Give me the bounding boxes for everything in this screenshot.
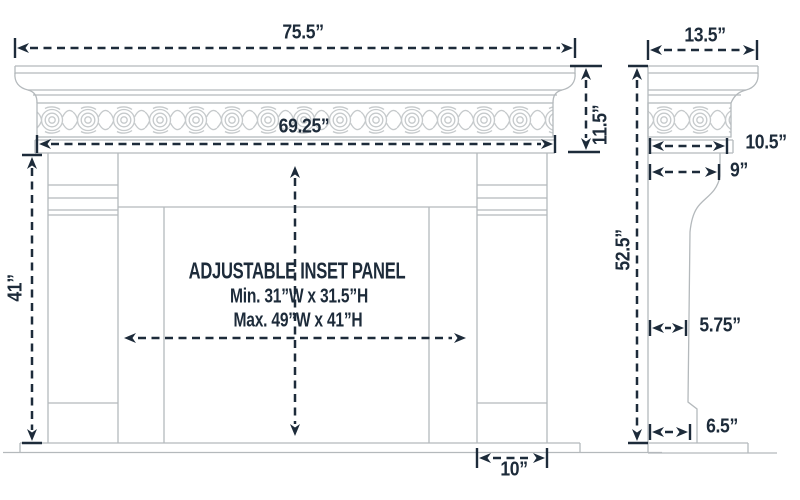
dim-leg-width-label: 10” bbox=[500, 459, 527, 482]
dim-frieze-width-label: 69.25” bbox=[279, 116, 330, 139]
inset-panel-min: Min. 31”W x 31.5”H bbox=[230, 286, 368, 309]
inset-panel-max: Max. 49”W x 41”H bbox=[234, 310, 363, 333]
dim-header-depth-label: 9” bbox=[730, 160, 748, 183]
dim-leg-height-label: 41” bbox=[5, 274, 28, 301]
dim-overall-width-label: 75.5” bbox=[282, 22, 323, 45]
dim-base-depth bbox=[650, 424, 690, 440]
side-scroll-frieze bbox=[648, 103, 731, 137]
dim-overall-height-label: 52.5” bbox=[613, 229, 636, 270]
diagram-linework bbox=[0, 0, 800, 500]
dim-leg-depth bbox=[650, 320, 686, 336]
fireplace-dimension-diagram: 75.5” 69.25” 11.5” 41” 10” ADJUSTABLE IN… bbox=[0, 0, 800, 500]
dim-leg-depth-label: 5.75” bbox=[699, 315, 740, 338]
side-view-linework bbox=[648, 66, 777, 453]
dim-shelf-bottom-depth-label: 10.5” bbox=[745, 132, 786, 155]
dim-header-depth bbox=[650, 164, 719, 180]
dim-shelf-depth-label: 13.5” bbox=[684, 25, 725, 48]
dim-header-height-label: 11.5” bbox=[590, 105, 613, 145]
dim-base-depth-label: 6.5” bbox=[706, 416, 738, 439]
inset-panel-title: ADJUSTABLE INSET PANEL bbox=[189, 258, 406, 285]
